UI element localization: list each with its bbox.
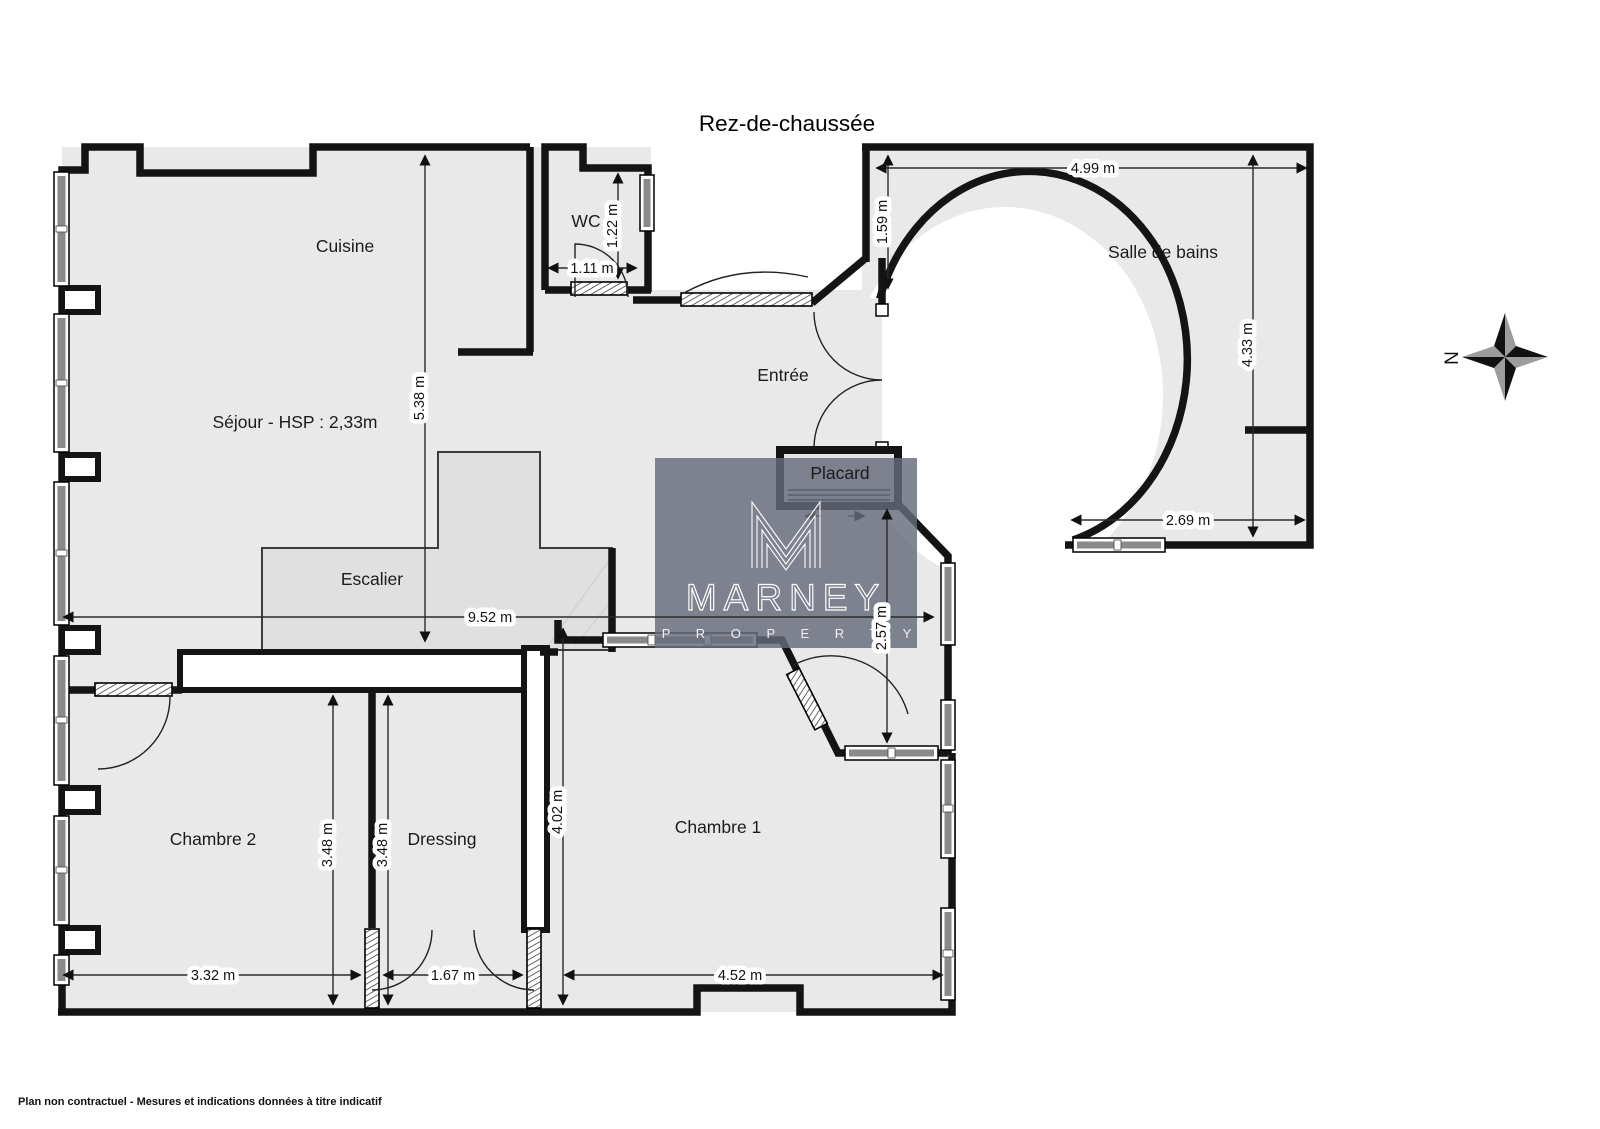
- room-label-placard: Placard: [810, 463, 869, 483]
- dim-label: 4.02 m: [550, 790, 566, 834]
- window-glyph: [54, 816, 69, 925]
- wall-notch: [62, 455, 98, 479]
- compass-north-label: N: [1442, 351, 1463, 365]
- room-label-entree: Entrée: [757, 365, 809, 385]
- dim-label: 4.52 m: [718, 968, 762, 984]
- wall-notch: [62, 288, 98, 312]
- window-glyph: [54, 172, 69, 286]
- wc-door-glyph: [571, 282, 627, 295]
- room-label-sejour: Séjour - HSP : 2,33m: [212, 412, 377, 432]
- window-glyph: [640, 175, 654, 231]
- dim-label: 1.22 m: [605, 204, 621, 248]
- door-jamb: [876, 304, 888, 316]
- compass-rose: N: [1442, 313, 1548, 401]
- room-label-cuisine: Cuisine: [316, 236, 374, 256]
- dim-label: 3.48 m: [320, 823, 336, 867]
- floor-plan-page: MARNEY P R O P E R T Y 5.38 m 1.22 m 1.1…: [0, 0, 1600, 1129]
- room-label-wc: WC: [571, 211, 600, 231]
- wall-notch: [62, 628, 98, 652]
- window-glyph: [1073, 538, 1165, 552]
- entree-top-wall: [633, 147, 866, 303]
- room-label-salle-de-bains: Salle de bains: [1108, 242, 1218, 262]
- wall-notch: [62, 928, 98, 952]
- dim-label: 4.99 m: [1071, 161, 1115, 177]
- dressing-right-door-glyph: [527, 929, 541, 1008]
- room-label-chambre2: Chambre 2: [170, 829, 257, 849]
- dim-label: 2.57 m: [874, 606, 890, 650]
- wall-notch: [62, 788, 98, 812]
- dressing-wall-cavity: [524, 648, 547, 930]
- entree-top-door-glyph: [681, 293, 812, 306]
- entree-top-door-swing: [684, 272, 808, 293]
- dim-label: 3.32 m: [191, 968, 235, 984]
- dim-label: 1.59 m: [875, 200, 891, 244]
- dressing-left-door-glyph: [365, 929, 379, 1008]
- window-glyph: [941, 760, 955, 858]
- room-label-escalier: Escalier: [341, 569, 403, 589]
- dim-label: 1.11 m: [570, 261, 613, 277]
- page-title: Rez-de-chaussée: [699, 111, 875, 136]
- footer-disclaimer: Plan non contractuel - Mesures et indica…: [18, 1096, 382, 1108]
- dim-label: 9.52 m: [468, 610, 512, 626]
- window-glyph: [845, 746, 938, 760]
- window-glyph: [54, 656, 69, 785]
- dim-label: 4.33 m: [1240, 323, 1256, 367]
- dim-label: 2.69 m: [1166, 513, 1210, 529]
- room-label-chambre1: Chambre 1: [675, 817, 762, 837]
- window-glyph: [54, 314, 69, 452]
- dim-label: 3.48 m: [375, 823, 391, 867]
- window-glyph: [54, 482, 69, 625]
- window-glyph: [941, 908, 955, 1000]
- floor-plan-drawing: MARNEY P R O P E R T Y 5.38 m 1.22 m 1.1…: [0, 0, 1600, 1129]
- room-label-dressing: Dressing: [407, 829, 476, 849]
- window-glyph: [941, 563, 955, 645]
- watermark-name: MARNEY: [686, 577, 886, 618]
- dim-label: 5.38 m: [412, 376, 428, 420]
- corridor-cavity: [180, 652, 540, 690]
- dim-label: 1.67 m: [431, 968, 475, 984]
- window-glyph: [54, 955, 69, 985]
- chambre2-door-glyph: [95, 683, 172, 696]
- window-glyph: [941, 700, 955, 750]
